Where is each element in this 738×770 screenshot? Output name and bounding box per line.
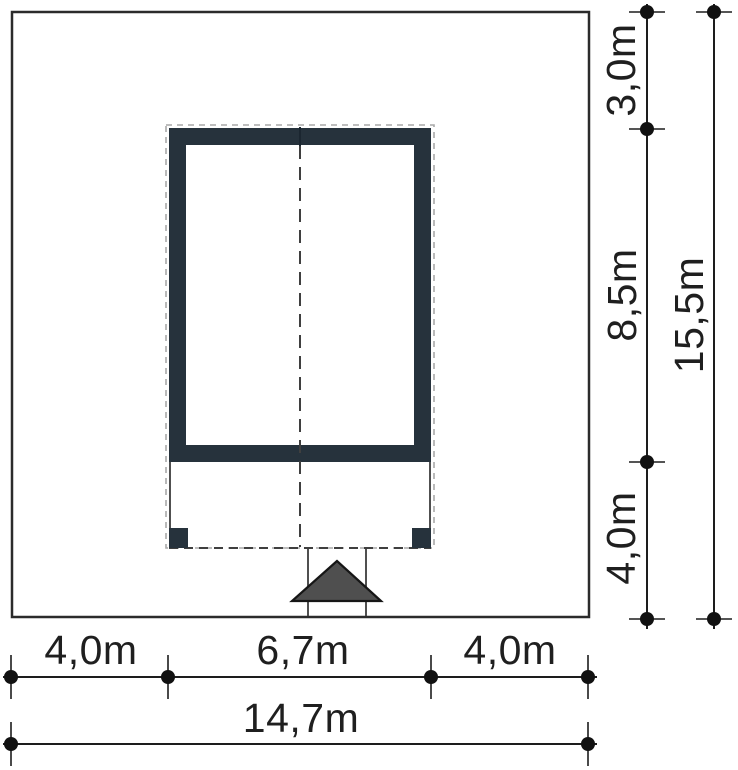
dim-label-right-total: 15,5m — [666, 257, 712, 373]
dim-label-bottom-right: 4,0m — [463, 627, 556, 673]
dim-dot — [4, 737, 18, 751]
dim-dot — [581, 670, 595, 684]
site-plan-figure: 3,0m 8,5m 4,0m 15,5m 4,0 — [0, 0, 738, 770]
dim-dot — [640, 455, 654, 469]
pillar-right — [412, 528, 431, 548]
dim-dot — [581, 737, 595, 751]
site-plan: 3,0m 8,5m 4,0m 15,5m 4,0 — [0, 0, 738, 770]
dim-dot — [424, 670, 438, 684]
dim-label-right-middle: 8,5m — [599, 248, 645, 341]
dim-label-bottom-center: 6,7m — [256, 627, 349, 673]
dim-dot — [640, 122, 654, 136]
dim-dot — [4, 670, 18, 684]
dim-label-right-top: 3,0m — [598, 23, 644, 116]
dim-dot — [707, 612, 721, 626]
dim-label-bottom-total: 14,7m — [243, 695, 359, 741]
right-dimension-lines: 3,0m 8,5m 4,0m 15,5m — [598, 4, 732, 629]
dim-label-right-bottom: 4,0m — [598, 491, 644, 584]
dim-dot — [707, 5, 721, 19]
pillar-left — [169, 528, 188, 548]
dim-dot — [640, 5, 654, 19]
dim-dot — [640, 612, 654, 626]
dim-dot — [161, 670, 175, 684]
bottom-dimension-lines: 4,0m 6,7m 4,0m 14,7m — [3, 627, 597, 766]
dim-label-bottom-left: 4,0m — [44, 627, 137, 673]
